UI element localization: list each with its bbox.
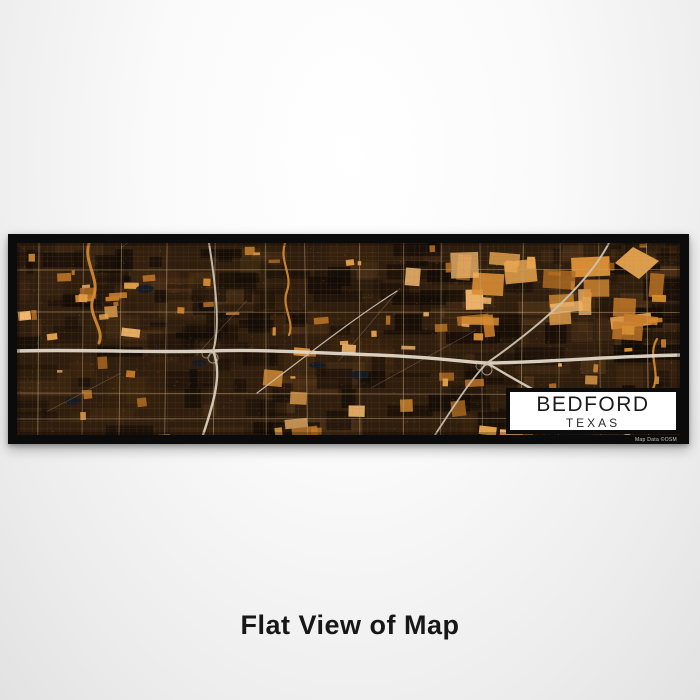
map-city-label: BEDFORD — [536, 394, 649, 415]
view-caption: Flat View of Map — [0, 610, 700, 641]
map-attribution: Map Data ©OSM — [635, 438, 677, 443]
framed-map-print: BEDFORD TEXAS Map Data ©OSM — [8, 234, 689, 444]
map-title-card: BEDFORD TEXAS — [506, 388, 680, 434]
map-state-label: TEXAS — [566, 417, 620, 429]
page-background: BEDFORD TEXAS Map Data ©OSM Flat View of… — [0, 0, 700, 700]
